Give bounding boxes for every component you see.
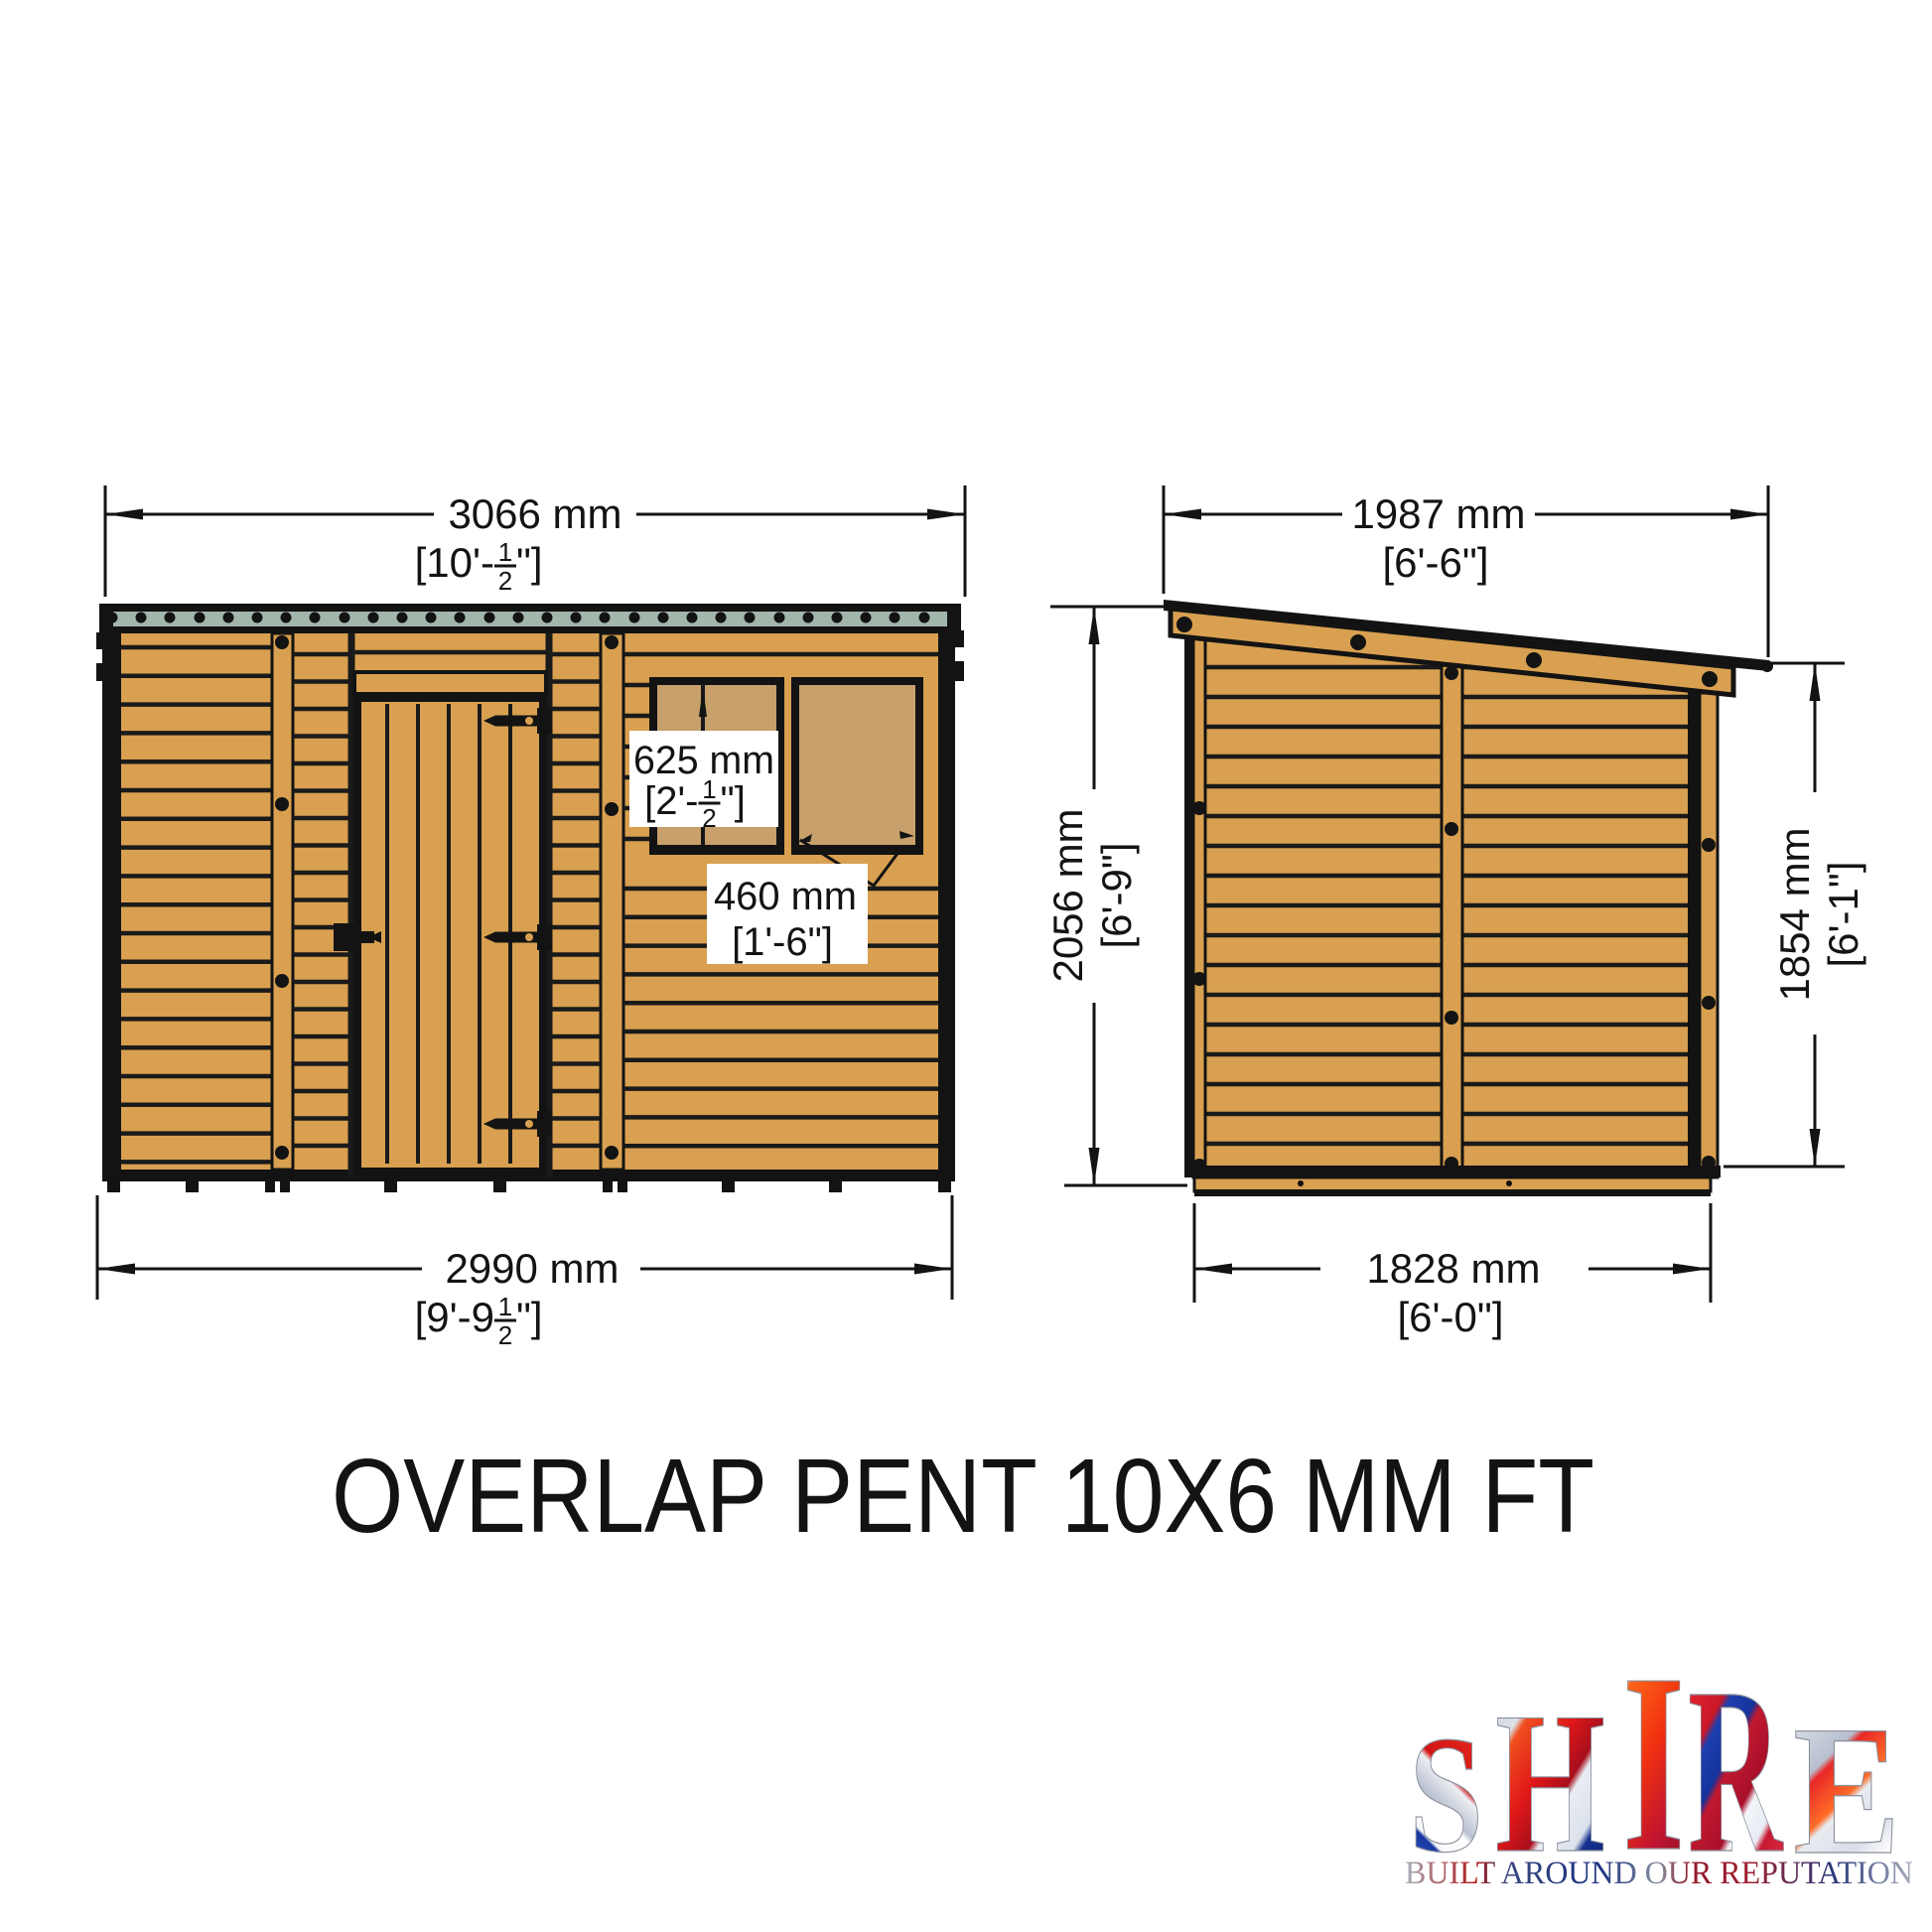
svg-text:BUILT AROUND OUR REPUTATION: BUILT AROUND OUR REPUTATION	[1405, 1856, 1913, 1891]
svg-text:1987 mm: 1987 mm	[1351, 490, 1525, 537]
svg-text:1: 1	[498, 1292, 512, 1321]
svg-text:2: 2	[498, 566, 512, 596]
svg-text:2990 mm: 2990 mm	[445, 1245, 619, 1292]
svg-text:[10'-: [10'-	[415, 539, 494, 586]
svg-text:3066 mm: 3066 mm	[448, 490, 621, 537]
svg-text:2: 2	[702, 803, 716, 833]
svg-text:1854 mm: 1854 mm	[1771, 827, 1818, 1001]
svg-text:[9'-9: [9'-9	[415, 1294, 494, 1340]
svg-text:1828 mm: 1828 mm	[1366, 1245, 1540, 1292]
svg-text:[6'-9"]: [6'-9"]	[1093, 843, 1140, 949]
svg-text:[6'-1"]: [6'-1"]	[1820, 862, 1866, 968]
svg-text:2056 mm: 2056 mm	[1044, 808, 1091, 982]
svg-text:OVERLAP PENT 10X6 MM FT: OVERLAP PENT 10X6 MM FT	[332, 1438, 1594, 1555]
svg-text:"]: "]	[721, 779, 746, 823]
svg-text:"]: "]	[516, 539, 543, 586]
svg-text:2: 2	[498, 1320, 512, 1350]
svg-text:[1'-6"]: [1'-6"]	[732, 920, 833, 964]
svg-text:1: 1	[498, 537, 512, 567]
svg-text:1: 1	[702, 774, 716, 804]
svg-text:[6'-0"]: [6'-0"]	[1398, 1294, 1504, 1340]
svg-text:"]: "]	[516, 1294, 543, 1340]
svg-text:[2'-: [2'-	[644, 779, 698, 823]
svg-text:460 mm: 460 mm	[714, 875, 857, 918]
svg-text:[6'-6"]: [6'-6"]	[1383, 539, 1489, 586]
